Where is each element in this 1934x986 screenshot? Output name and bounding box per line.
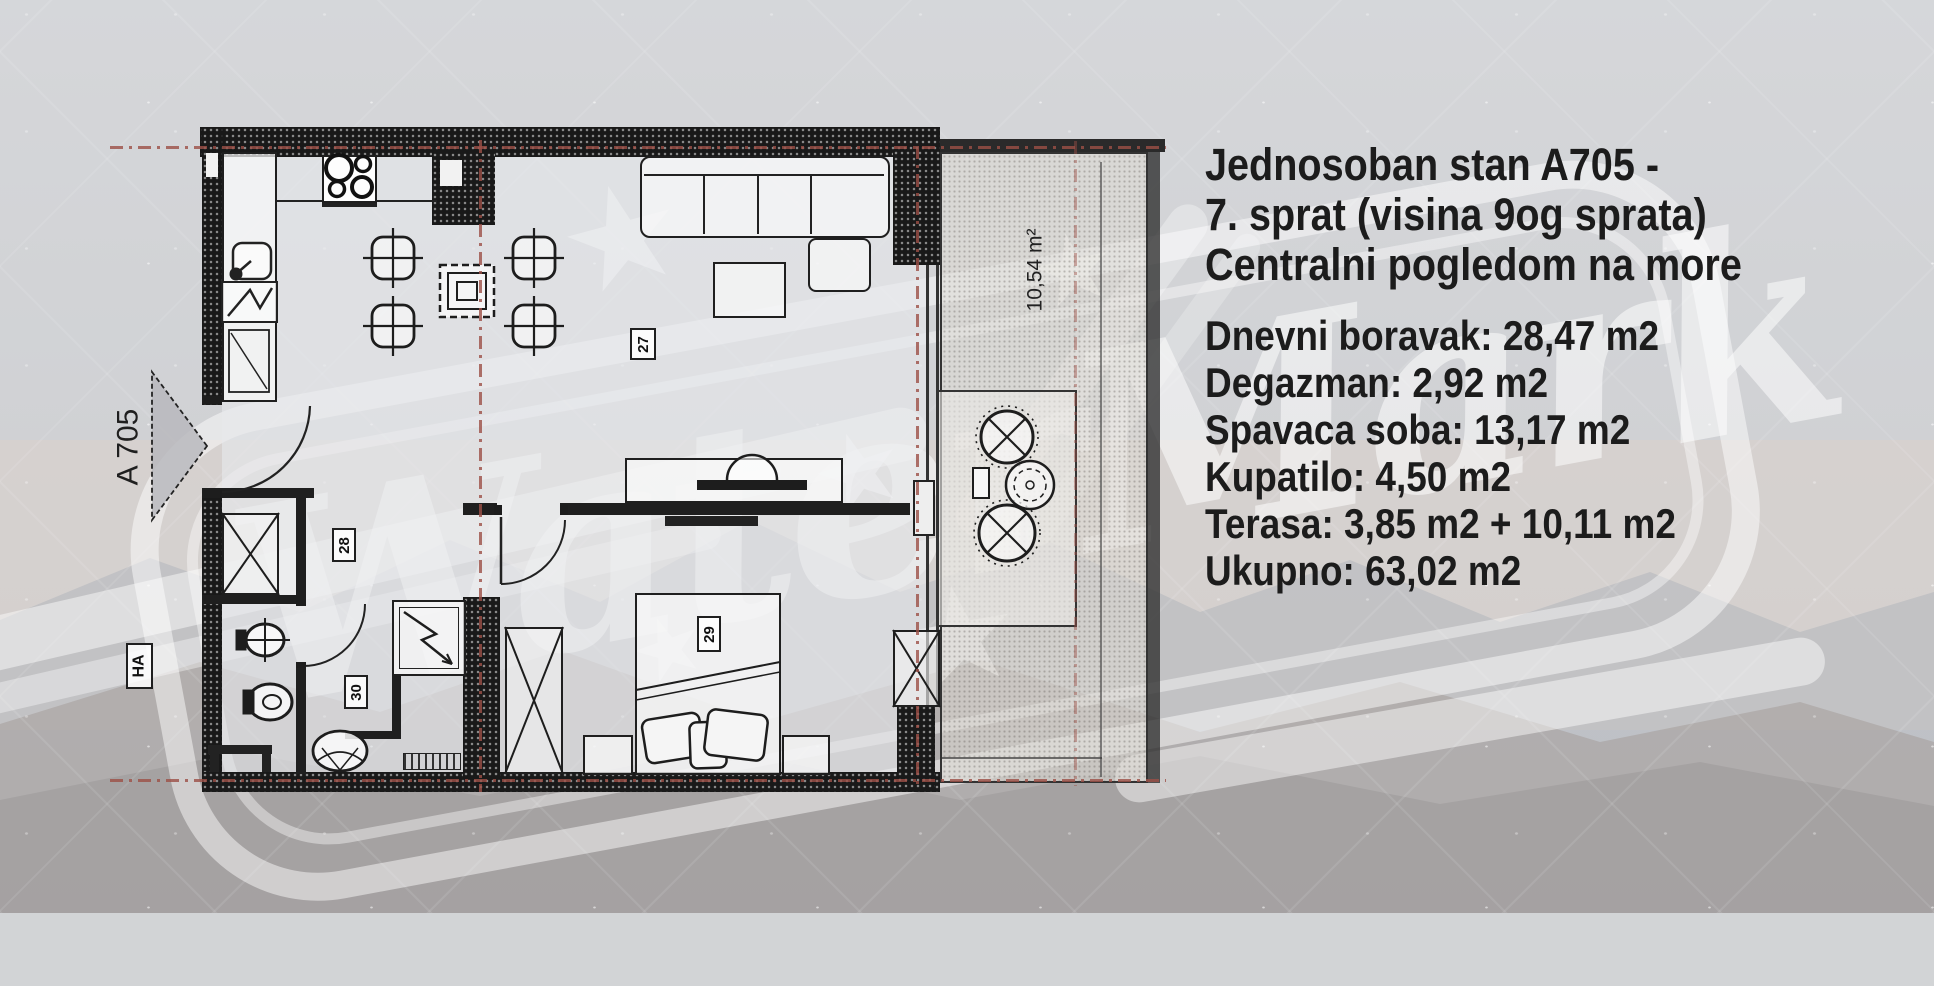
reference-line-horizontal-bottom (110, 779, 1166, 782)
terrace-area-label: 10,54 m² (995, 205, 1075, 335)
listing-title-line: Centralni pogledom na more (1205, 240, 1874, 290)
sofa-cushion-divider (810, 174, 812, 234)
bath-bench (208, 745, 272, 754)
terrace-bottom-line (942, 757, 1102, 759)
terrace-seating-area (937, 390, 1077, 627)
sofa-cushion-divider (757, 174, 759, 234)
listing-title-line: Jednosoban stan A705 - (1205, 140, 1874, 190)
bath-bench-leg (262, 754, 271, 772)
wall-bath-foot (345, 731, 401, 739)
sofa (640, 156, 890, 238)
shower (392, 600, 466, 676)
room-number-living: 27 (630, 328, 656, 360)
nightstand-left (583, 735, 633, 775)
area-line: Degazman: 2,92 m2 (1205, 359, 1874, 406)
nightstand-right (782, 735, 830, 775)
sofa-back-line (644, 174, 884, 176)
wall-partition-bedroom (560, 503, 910, 515)
listing-details: Dnevni boravak: 28,47 m2 Degazman: 2,92 … (1205, 312, 1874, 594)
kitchen-counter (222, 152, 277, 402)
shower-inner-frame (399, 607, 459, 669)
listing-title: Jednosoban stan A705 - 7. sprat (visina … (1205, 140, 1874, 290)
reference-line-vertical-glass (916, 146, 919, 786)
terrace-outer-rail (1148, 152, 1160, 783)
reference-line-vertical-kitchen (479, 140, 482, 792)
reference-line-horizontal-top (110, 146, 1166, 149)
unit-marker-label: A 705 (106, 392, 150, 502)
tv-console (625, 458, 843, 503)
area-line: Kupatilo: 4,50 m2 (1205, 453, 1874, 500)
radiator (403, 753, 461, 770)
listing-title-line: 7. sprat (visina 9og sprata) (1205, 190, 1874, 240)
wall-bathroom-top (202, 595, 304, 604)
wall-stub-notch (440, 160, 462, 186)
wall-shower-side (392, 675, 401, 737)
wall-kitchen-stub (432, 152, 495, 225)
wall-south (202, 772, 940, 792)
tv-soundbar (665, 516, 758, 526)
coffee-table (713, 262, 786, 318)
shaft-label: HA (126, 643, 153, 689)
wall-hall-east-upper (296, 488, 306, 605)
wall-shaft-notch (206, 153, 218, 177)
area-line: Dnevni boravak: 28,47 m2 (1205, 312, 1874, 359)
terrace-rail-line (1100, 162, 1102, 777)
stove-base (322, 203, 377, 207)
area-line: Ukupno: 63,02 m2 (1205, 547, 1874, 594)
bath-bench-leg (210, 754, 219, 772)
sofa-cushion-divider (703, 174, 705, 234)
sofa-chaise (808, 238, 871, 292)
bedroom-wardrobe-west (505, 627, 563, 774)
hall-wardrobe (222, 513, 279, 595)
room-number-hallway: 28 (332, 528, 356, 562)
area-line: Terasa: 3,85 m2 + 10,11 m2 (1205, 500, 1874, 547)
wall-hall-east-lower (296, 666, 306, 774)
area-line: Spavaca soba: 13,17 m2 (1205, 406, 1874, 453)
stove (322, 155, 377, 203)
unit-entrance-arrow-icon (152, 372, 207, 520)
room-number-bedroom: 29 (697, 616, 721, 652)
wall-north (200, 127, 940, 157)
room-number-bathroom: 30 (344, 675, 368, 709)
